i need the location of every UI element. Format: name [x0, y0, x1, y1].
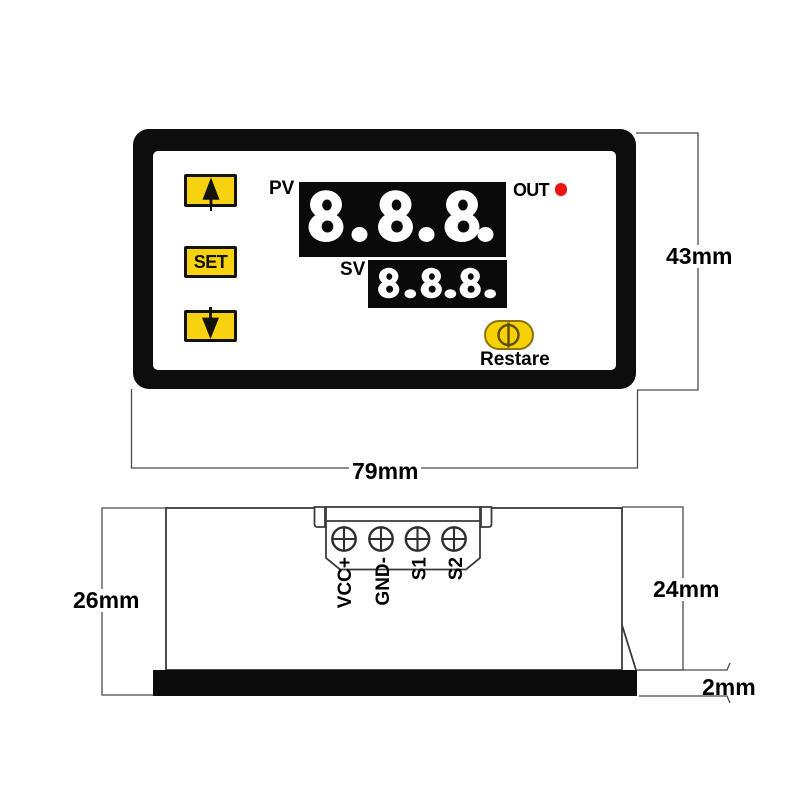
svg-text:S2: S2: [446, 557, 467, 580]
svg-text:VCC+: VCC+: [335, 557, 356, 608]
svg-text:S1: S1: [410, 557, 431, 581]
svg-text:GND-: GND-: [373, 557, 394, 606]
